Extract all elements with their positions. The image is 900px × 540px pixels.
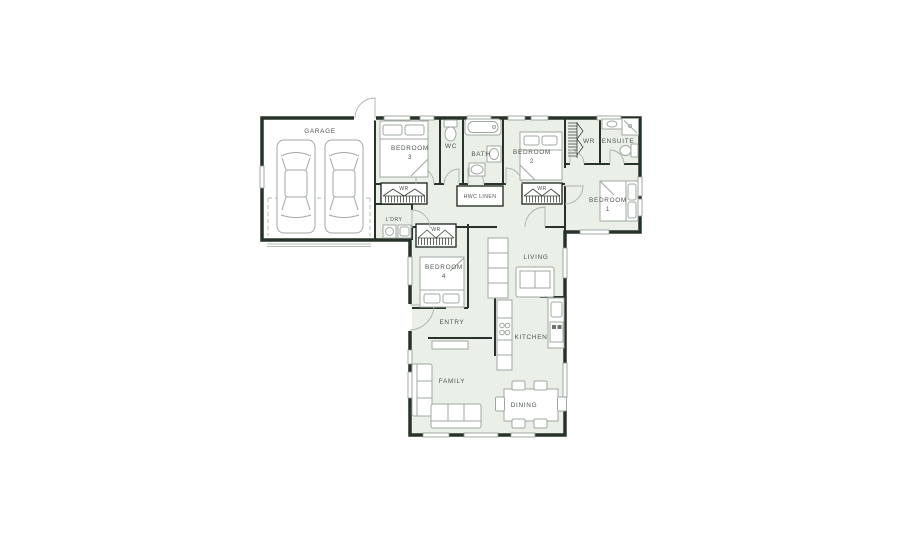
bathtub xyxy=(465,119,501,135)
label-bedroom3: BEDROOM xyxy=(391,145,429,152)
kitchen-bench xyxy=(548,298,564,348)
floor-plan-canvas: GARAGE BEDROOM 3 WC BATH BEDROOM 2 WR EN… xyxy=(0,0,900,540)
garage-side-door xyxy=(355,98,375,118)
label-walk-in-robe: WR xyxy=(583,138,595,145)
label-bedroom2: BEDROOM xyxy=(513,149,551,156)
kitchen-island xyxy=(497,300,512,370)
window xyxy=(638,177,642,196)
window xyxy=(420,116,434,120)
label-kitchen: KITCHEN xyxy=(515,334,548,341)
window xyxy=(580,230,609,234)
label-hwc-linen: HWC LINEN xyxy=(464,194,497,200)
label-family: FAMILY xyxy=(439,378,465,385)
label-bath: BATH xyxy=(471,151,490,158)
car-2 xyxy=(325,140,363,233)
label-living: LIVING xyxy=(523,254,548,261)
window xyxy=(260,166,264,188)
window xyxy=(638,199,642,216)
window xyxy=(408,350,412,364)
toilet-wc xyxy=(444,120,457,141)
window xyxy=(408,372,412,398)
window xyxy=(531,116,548,120)
window xyxy=(423,433,449,437)
label-dining: DINING xyxy=(511,402,538,409)
living-shelf xyxy=(488,238,508,298)
label-bedroom1: BEDROOM xyxy=(589,197,627,204)
window xyxy=(508,116,525,120)
label-entry: ENTRY xyxy=(439,319,464,326)
entry-sideboard xyxy=(432,341,468,349)
living-couch xyxy=(516,267,554,297)
label-garage: GARAGE xyxy=(304,128,336,135)
label-laundry: L'DRY xyxy=(386,217,403,223)
window xyxy=(563,248,567,278)
label-bedroom4: BEDROOM xyxy=(425,264,463,271)
family-couch-left xyxy=(412,364,432,416)
label-bedroom1-number: 1 xyxy=(606,206,610,213)
window xyxy=(464,433,498,437)
garage-door-lines xyxy=(267,244,371,247)
label-ensuite: ENSUITE xyxy=(602,138,635,145)
window xyxy=(511,433,535,437)
ensuite-shower xyxy=(622,119,639,136)
label-wardrobe-bed2: WR xyxy=(537,186,546,192)
window xyxy=(408,257,412,285)
label-wc: WC xyxy=(445,143,457,150)
window xyxy=(384,116,410,120)
label-wardrobe-bed3: WR xyxy=(399,186,408,192)
window xyxy=(563,363,567,397)
family-couch-bottom xyxy=(431,404,481,428)
ensuite-vanity xyxy=(602,119,622,129)
garage-side-door-opening xyxy=(354,116,376,121)
car-1 xyxy=(277,140,315,233)
front-door-opening xyxy=(408,304,412,331)
label-wardrobe-bed4: WR xyxy=(431,227,440,233)
bed-bedroom2 xyxy=(520,132,562,180)
label-bedroom3-number: 3 xyxy=(408,154,412,161)
label-bedroom4-number: 4 xyxy=(442,273,446,280)
floor-plan-page: GARAGE BEDROOM 3 WC BATH BEDROOM 2 WR EN… xyxy=(0,0,900,540)
label-bedroom2-number: 2 xyxy=(530,158,534,165)
